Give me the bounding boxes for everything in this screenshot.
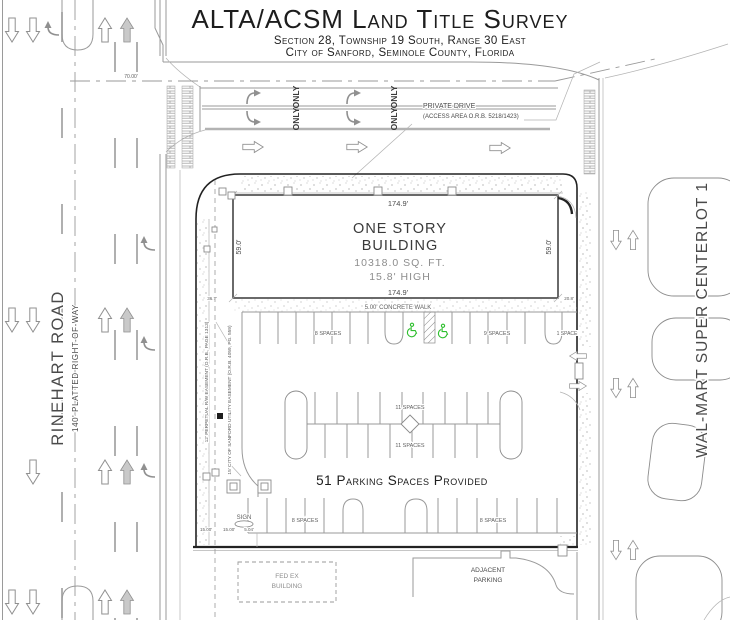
down-arrow-icon [611,230,621,249]
up-arrow-icon [99,18,112,42]
dimension-label: 15.00' [200,527,212,532]
down-arrow-icon [611,540,621,559]
turn-arrow-icon [347,111,361,126]
up-arrow-icon [628,378,638,397]
space-count-label: 8 SPACES [480,518,507,524]
up-arrow-icon [121,460,134,484]
down-arrow-icon [6,308,19,332]
parking-island [545,312,562,344]
utility-box [212,469,219,476]
space-count-label: 8 SPACES [292,518,319,524]
sheet-title: ALTA/ACSM Land Title Survey [191,4,568,34]
building-dim-right: 59.0' [546,240,553,255]
building-dim-left: 59.0' [236,240,243,255]
median-nose [62,0,93,50]
building: 174.9' 174.9' 59.0' 59.0' ONE STORY BUIL… [229,187,562,302]
adjacent-parking-label-line1: ADJACENT [471,567,505,574]
easement-utility-label: 15' CITY OF SANFORD UTILITY EASEMENT (O.… [227,325,233,475]
north-curb [163,62,599,80]
sheet-subtitle-1: Section 28, Township 19 South, Range 30 … [274,35,526,47]
landscape-island [636,556,722,620]
up-arrow-icon [99,308,112,332]
down-arrow-icon [27,590,40,614]
turn-arrow-icon [141,463,156,477]
rinehart-road: RINEHART ROAD 140' PLATTED RIGHT-OF-WAY [3,0,181,620]
private-drive-label: PRIVATE DRIVE [423,103,476,110]
crosswalk-hatch [424,312,435,343]
curb-return [558,198,572,214]
only-marking: ONLY [291,107,301,130]
column-pad [448,187,456,195]
parking-middle-rows: 11 SPACES 11 SPACES 51 Parking Spaces Pr… [285,391,522,488]
utility-box [558,545,567,556]
up-arrow-icon [121,308,134,332]
offset-dimension: 70.00' [124,74,138,80]
up-arrow-icon [121,18,134,42]
sidewalk-hatch [182,86,193,168]
right-arrow-icon [347,141,367,152]
space-count-label: 9 SPACES [484,331,511,337]
survey-sheet: RINEHART ROAD 140' PLATTED RIGHT-OF-WAY … [0,0,730,620]
space-count-label: 1 SPACE [557,331,578,337]
space-count-label: 11 SPACES [395,443,424,449]
up-arrow-icon [99,460,112,484]
up-arrow-icon [628,540,638,559]
handicap-icon [407,323,416,337]
corner-dim-right: 20.8' [564,296,574,301]
handicap-icon [438,324,447,338]
walk-stipple [578,192,591,347]
space-count-label: 11 SPACES [395,405,424,411]
right-arrow-icon [490,142,510,153]
up-arrow-icon [121,590,134,614]
survey-drawing: RINEHART ROAD 140' PLATTED RIGHT-OF-WAY … [0,0,730,620]
building-dim-top: 174.9' [388,199,409,208]
concrete-walk-label: 5.00' CONCRETE WALK [365,305,432,311]
fedex-label-line1: FED EX [275,573,299,580]
turn-arrow-icon [347,90,361,105]
parking-island [385,312,403,344]
entrance-arc [605,44,728,78]
stall-lines [248,498,557,533]
utility-box [219,188,226,195]
turn-arrow-icon [45,21,60,35]
median-nose [62,586,93,620]
down-arrow-icon [6,18,19,42]
building-name-line2: BUILDING [362,238,439,254]
only-marking: ONLY [389,85,399,108]
parking-top-row: 5.00' CONCRETE WALK 36.7' 20.8' 8 SPACES… [207,296,586,497]
utility-box [203,473,210,480]
parking-island [343,499,363,533]
down-arrow-icon [611,378,621,397]
turn-arrow-icon [141,236,156,250]
building-name-line1: ONE STORY [353,221,447,237]
fedex-label-line2: BUILDING [272,583,303,590]
landscape-island [652,318,730,380]
transformer-pad-inner [230,483,237,490]
sidewalk-hatch [584,90,595,174]
down-arrow-icon [27,460,40,484]
monument-marker [217,413,223,419]
fedex-building-outline [238,562,336,602]
dimension-label: 5.04' [244,527,254,532]
only-marking: ONLY [389,107,399,130]
space-count-label: 8 SPACES [315,331,342,337]
parking-summary: 51 Parking Spaces Provided [316,473,488,488]
turn-arrow-icon [141,336,156,350]
down-arrow-icon [27,308,40,332]
sign-label: SIGN [237,515,252,521]
sheet-subtitle-2: City of Sanford, Seminole County, Florid… [286,47,515,59]
turn-arrow-icon [247,111,261,126]
down-arrow-icon [6,590,19,614]
up-arrow-icon [99,590,112,614]
utility-box [212,227,217,232]
only-marking: ONLY [291,85,301,108]
left-arrow-icon [570,351,587,360]
turn-arrow-icon [247,90,261,105]
private-drive-sublabel: (ACCESS AREA O.R.B. 5218/1423) [423,114,519,120]
corner-dim-left: 36.7' [207,296,217,301]
walk-stipple [578,393,591,545]
dimension-label: 15.00' [223,527,235,532]
aisle-curb [242,312,258,497]
walk-stipple [560,536,577,546]
sidewalk-hatch [167,86,175,168]
right-of-way-label: 140' PLATTED RIGHT-OF-WAY [71,304,80,432]
adjacent-parking-label-line2: PARKING [474,577,503,584]
drive-sign-box [575,363,583,379]
title-block: ALTA/ACSM Land Title Survey Section 28, … [191,4,568,59]
utility-box [204,246,210,252]
building-height: 15.8' HIGH [369,271,431,283]
parking-island [500,391,522,459]
down-arrow-icon [27,18,40,42]
south-area: FED EX BUILDING ADJACENT PARKING [238,545,577,620]
column-pad [374,187,382,195]
building-area: 10318.0 SQ. FT. [354,257,445,269]
east-area: WAL-MART SUPER CENTERLOT 1 [599,78,730,620]
landscape-island [648,178,730,296]
stall-lines [260,312,525,344]
drive-flare [155,0,163,62]
walmart-label: WAL-MART SUPER CENTERLOT 1 [694,182,711,458]
column-pad [284,187,292,195]
transformer-pad-inner [261,483,268,490]
island-diamond [401,415,419,433]
easement-rw-label: 12' PERPETUAL R/W EASEMENT (O.R.B., PAGE… [204,321,210,442]
parking-bottom-row: 8 SPACES 8 SPACES SIGN 15.00' 15.00' 5.0… [200,498,577,547]
utility-box [228,192,235,199]
parking-island [405,499,427,533]
up-arrow-icon [628,230,638,249]
right-arrow-icon [243,141,263,152]
adjacent-parking-curb [413,551,574,597]
building-dim-bottom: 174.9' [388,288,409,297]
right-arrow-icon [570,381,587,390]
street-name-rinehart: RINEHART ROAD [49,290,67,446]
parking-island [285,391,307,459]
